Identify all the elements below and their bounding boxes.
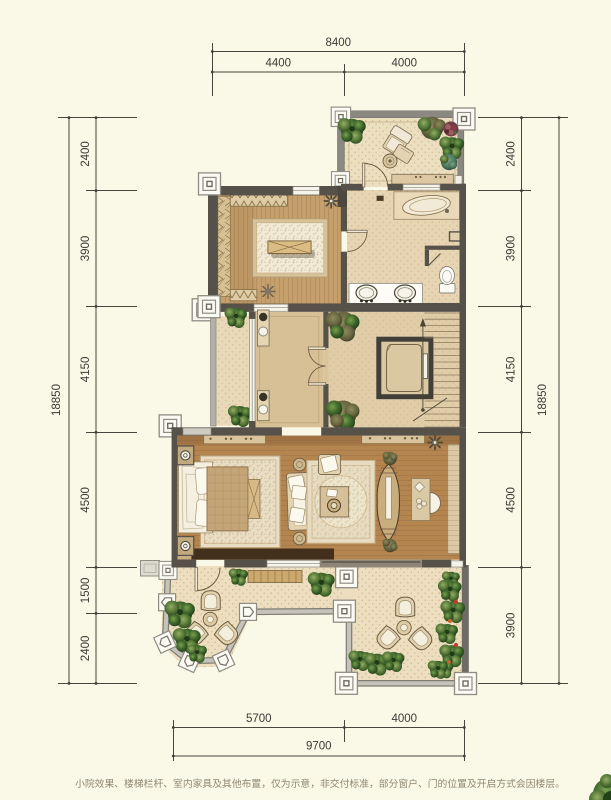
svg-text:3900: 3900 (506, 236, 518, 262)
svg-text:4000: 4000 (392, 58, 418, 70)
svg-text:4400: 4400 (266, 58, 292, 70)
svg-text:3900: 3900 (80, 236, 92, 262)
svg-text:9700: 9700 (306, 741, 332, 753)
svg-text:2400: 2400 (80, 636, 92, 662)
svg-text:2400: 2400 (506, 141, 518, 167)
svg-text:5700: 5700 (246, 713, 272, 725)
svg-text:3900: 3900 (506, 613, 518, 639)
svg-text:18850: 18850 (51, 384, 63, 416)
svg-text:18850: 18850 (537, 384, 549, 416)
svg-text:8400: 8400 (326, 37, 352, 49)
svg-text:2400: 2400 (80, 141, 92, 167)
svg-text:4500: 4500 (80, 487, 92, 513)
svg-text:4150: 4150 (506, 357, 518, 383)
svg-text:小院效果、楼梯栏杆、室内家具及其他布置，仅为示意，非交付标准: 小院效果、楼梯栏杆、室内家具及其他布置，仅为示意，非交付标准，部分窗户、门的位置… (75, 777, 565, 790)
svg-text:4500: 4500 (506, 487, 518, 513)
svg-text:4000: 4000 (392, 713, 418, 725)
svg-text:1500: 1500 (80, 578, 92, 604)
svg-text:4150: 4150 (80, 357, 92, 383)
